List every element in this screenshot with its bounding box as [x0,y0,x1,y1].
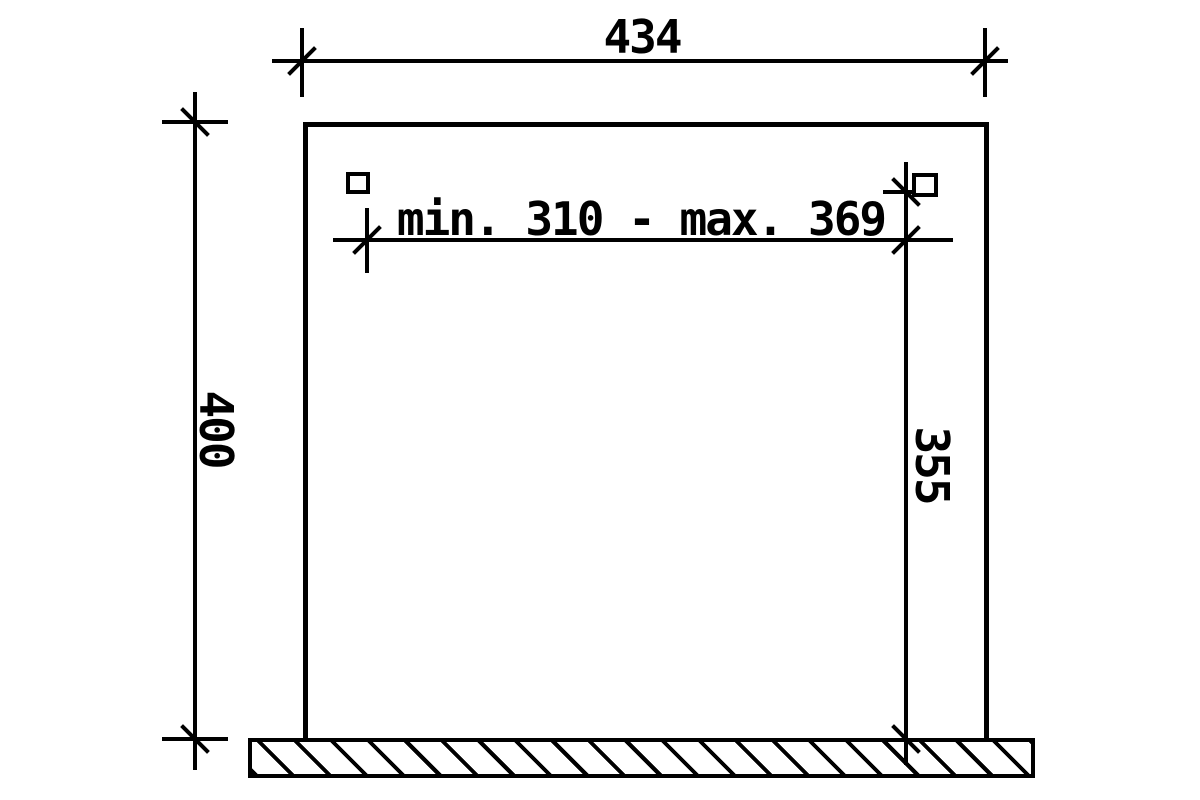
dim-label-overall-height: 400 [193,369,239,489]
dim-label-overall-width: 434 [582,14,702,60]
post-marker-left [346,172,370,194]
frame-left-upright [303,122,308,738]
dim-label-inner-height: 355 [909,405,955,525]
frame-right-upright [984,122,989,738]
dim-label-clear-span: min. 310 - max. 369 [381,196,901,242]
technical-drawing-canvas: 434 400 min. 310 - max. 369 355 [0,0,1200,800]
frame-top-beam [303,122,989,127]
ground-slab-hatched [248,738,1035,778]
post-marker-right [912,173,938,197]
